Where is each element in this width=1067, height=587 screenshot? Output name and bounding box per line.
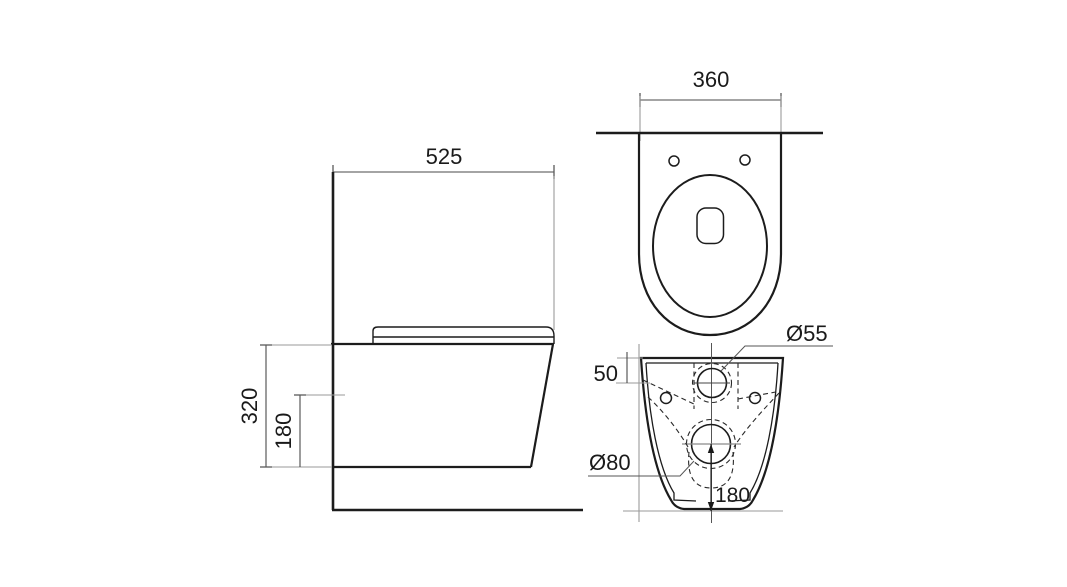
- side-depth-dimension: 525: [333, 144, 554, 330]
- outlet-diameter-label: Ø80: [589, 450, 631, 475]
- up-arrow: [708, 444, 714, 453]
- rear-outline-inner-left: [646, 363, 696, 501]
- left-hinge-hole: [669, 156, 679, 166]
- inlet-offset-dimension-label: 50: [594, 361, 618, 386]
- outlet-diameter-callout: Ø80: [588, 450, 694, 476]
- top-width-dimension-label: 360: [693, 67, 730, 92]
- top-width-dimension: 360: [640, 67, 781, 141]
- left-fixing-hole: [661, 393, 672, 404]
- body-front-slope: [531, 344, 553, 467]
- bowl-ellipse: [653, 175, 767, 317]
- side-view: 525 320 180: [237, 144, 583, 510]
- drawing-canvas: 525 320 180: [0, 0, 1067, 587]
- side-lower-height-dimension-label: 180: [271, 413, 296, 450]
- outlet-height-dimension: 180: [708, 444, 750, 511]
- side-height-dimension-label: 320: [237, 388, 262, 425]
- top-view: 360: [596, 67, 823, 335]
- dashed-line: [643, 380, 694, 404]
- rim-outline: [639, 133, 781, 335]
- right-hinge-hole: [740, 155, 750, 165]
- dashed-curve: [648, 397, 688, 447]
- technical-drawing: 525 320 180: [0, 0, 1067, 587]
- toilet-body-outline: [331, 344, 554, 467]
- side-depth-dimension-label: 525: [426, 144, 463, 169]
- outlet-height-dimension-label: 180: [715, 484, 750, 507]
- seat-lid-outline: [373, 327, 554, 344]
- drain-spot: [697, 208, 724, 244]
- rear-outline-inner-right: [728, 363, 778, 501]
- rear-view: 50 Ø55 Ø80 180: [588, 321, 833, 523]
- right-fixing-hole: [750, 393, 761, 404]
- inlet-diameter-label: Ø55: [786, 321, 828, 346]
